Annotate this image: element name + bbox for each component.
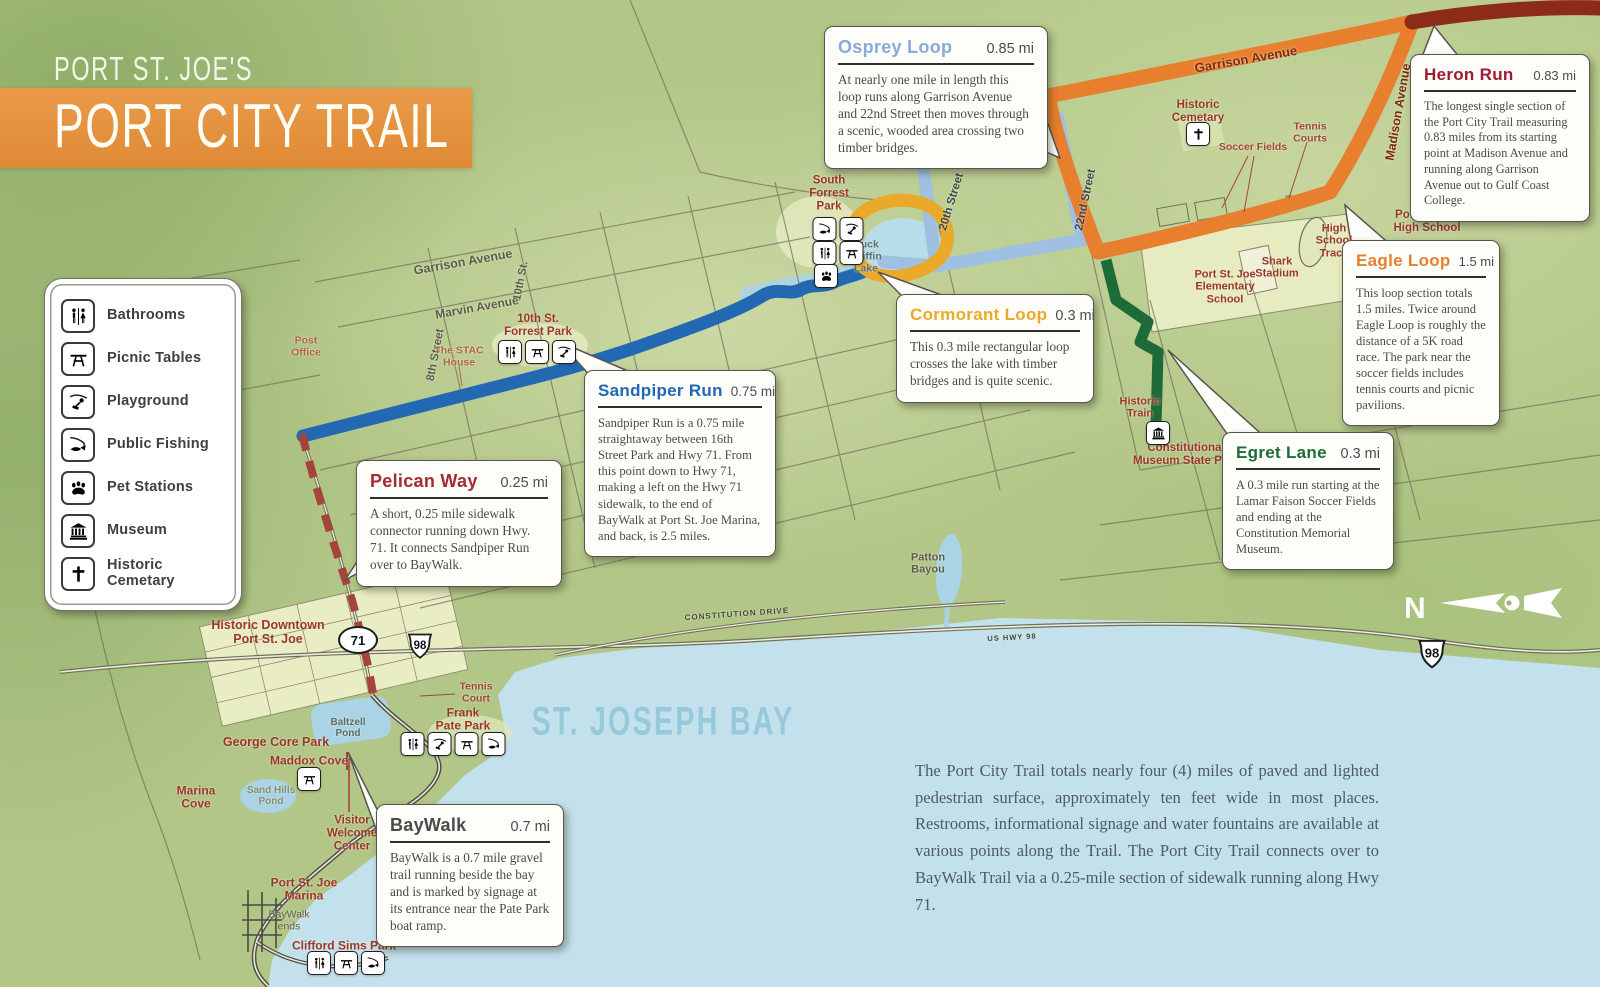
callout-heron-run: Heron Run0.83 mi The longest single sect… — [1410, 54, 1590, 222]
fishing-icon — [482, 732, 506, 756]
callout-sandpiper-run: Sandpiper Run0.75 mi Sandpiper Run is a … — [584, 370, 776, 557]
label-post-office: Post Office — [291, 335, 321, 359]
picnic-table-icon — [525, 340, 549, 364]
label-tennis-courts: Tennis Courts — [1293, 121, 1327, 145]
svg-text:98: 98 — [1425, 645, 1439, 660]
callout-distance: 0.75 mi — [731, 384, 775, 399]
callout-body: A short, 0.25 mile sidewalk connector ru… — [370, 506, 548, 574]
clifford-sims-park-icons — [307, 951, 385, 975]
legend-item-public-fishing: Public Fishing — [61, 428, 231, 462]
label-marina-cove: Marina Cove — [177, 785, 216, 812]
restroom-icon — [813, 241, 837, 265]
callout-title: Osprey Loop — [838, 37, 952, 58]
label-south-forrest-park: South Forrest Park — [809, 175, 849, 214]
fishing-icon — [361, 951, 385, 975]
label-historic-downtown: Historic Downtown Port St. Joe — [211, 618, 324, 646]
trail-summary-paragraph: The Port City Trail totals nearly four (… — [915, 758, 1379, 918]
frank-pate-park-icons — [401, 732, 506, 756]
paw-icon — [61, 471, 95, 505]
legend-item-playground: Playground — [61, 385, 231, 419]
legend-label: Bathrooms — [107, 308, 185, 324]
museum-icon — [61, 514, 95, 548]
label-sand-hills-pond: Sand Hills Pond — [247, 785, 295, 807]
playground-icon — [552, 340, 576, 364]
callout-body: At nearly one mile in length this loop r… — [838, 72, 1034, 156]
paw-icon — [814, 264, 838, 288]
label-elementary-school: Port St. Joe Elementary School — [1194, 269, 1255, 306]
legend-label: Pet Stations — [107, 480, 193, 496]
callout-body: A 0.3 mile run starting at the Lamar Fai… — [1236, 477, 1380, 557]
legend-label: Playground — [107, 394, 189, 410]
callout-cormorant-loop: Cormorant Loop0.3 mi This 0.3 mile recta… — [896, 294, 1094, 403]
label-baltzell-pond: Baltzell Pond — [330, 717, 365, 739]
callout-title: Sandpiper Run — [598, 381, 723, 401]
callout-body: This 0.3 mile rectangular loop crosses t… — [910, 339, 1080, 390]
callout-eagle-loop: Eagle Loop1.5 mi This loop section total… — [1342, 240, 1500, 426]
hwy-98-badge-right: 98 — [1415, 638, 1449, 677]
legend-label: Historic Cemetary — [107, 558, 175, 590]
south-forrest-park-icons-row1 — [813, 217, 864, 241]
legend-label: Museum — [107, 523, 167, 539]
label-baywalk-ends: BayWalk ends — [268, 909, 309, 933]
fishing-icon — [61, 428, 95, 462]
callout-distance: 0.25 mi — [500, 475, 548, 491]
trail-heron-dark — [1412, 8, 1600, 22]
callout-title: Cormorant Loop — [910, 305, 1047, 325]
callout-egret-lane: Egret Lane0.3 mi A 0.3 mile run starting… — [1222, 432, 1394, 570]
svg-text:N: N — [1404, 592, 1426, 625]
cross-icon — [1186, 122, 1210, 146]
callout-distance: 0.83 mi — [1533, 68, 1576, 83]
label-patton-bayou: Patton Bayou — [911, 552, 945, 577]
picnic-table-icon — [840, 241, 864, 265]
map-title: PORT CITY TRAIL — [54, 88, 449, 166]
playground-icon — [840, 217, 864, 241]
maddox-cove-icon — [297, 767, 321, 791]
compass-rose: N — [1404, 588, 1562, 625]
hwy-98-badge-left: 98 — [405, 632, 435, 667]
picnic-table-icon — [334, 951, 358, 975]
legend-label: Public Fishing — [107, 437, 209, 453]
label-historic-train: Historic Train — [1120, 396, 1161, 421]
map-kicker: PORT ST. JOE'S — [54, 50, 253, 89]
callout-distance: 1.5 mi — [1459, 254, 1494, 269]
cross-icon — [61, 557, 95, 591]
svg-text:98: 98 — [414, 640, 427, 652]
legend-label: Picnic Tables — [107, 351, 201, 367]
legend: Bathrooms Picnic Tables Playground Publi… — [44, 278, 242, 611]
tenth-st-park-icons — [498, 340, 576, 364]
label-maddox-cove: Maddox Cove — [270, 754, 348, 767]
legend-item-picnic-tables: Picnic Tables — [61, 342, 231, 376]
callout-distance: 0.3 mi — [1341, 446, 1381, 462]
callout-title: Egret Lane — [1236, 443, 1327, 463]
legend-item-historic-cemetary: Historic Cemetary — [61, 557, 231, 591]
label-visitor-welcome-center: Visitor Welcome Center — [327, 815, 377, 854]
callout-distance: 0.3 mi — [1055, 308, 1095, 324]
picnic-table-icon — [455, 732, 479, 756]
callout-body: Sandpiper Run is a 0.75 mile straightawa… — [598, 415, 762, 544]
callout-title: Pelican Way — [370, 471, 478, 492]
callout-body: The longest single section of the Port C… — [1424, 99, 1576, 209]
label-george-core-park: George Core Park — [223, 735, 329, 749]
callout-title: BayWalk — [390, 815, 466, 836]
historic-cemetary-icon — [1186, 122, 1210, 146]
legend-item-museum: Museum — [61, 514, 231, 548]
label-shark-stadium: Shark Stadium — [1255, 256, 1298, 281]
picnic-table-icon — [297, 767, 321, 791]
south-forrest-park-icons-row3 — [814, 264, 838, 288]
callout-body: This loop section totals 1.5 miles. Twic… — [1356, 285, 1486, 413]
restroom-icon — [401, 732, 425, 756]
port-city-trail-map: N PORT ST. JOE'S PORT CITY TRAIL Bathroo… — [0, 0, 1600, 987]
callout-title: Eagle Loop — [1356, 251, 1451, 271]
label-port-st-joe-marina: Port St. Joe Marina — [271, 877, 338, 904]
callout-baywalk: BayWalk0.7 mi BayWalk is a 0.7 mile grav… — [376, 804, 564, 947]
label-historic-cemetary: Historic Cemetary — [1172, 99, 1224, 125]
museum-map-icon — [1146, 421, 1170, 445]
callout-osprey-loop: Osprey Loop0.85 mi At nearly one mile in… — [824, 26, 1048, 169]
label-frank-pate-park: Frank Pate Park — [436, 707, 491, 734]
restroom-icon — [498, 340, 522, 364]
label-tennis-court: Tennis Court — [459, 681, 492, 705]
fishing-icon — [813, 217, 837, 241]
callout-distance: 0.7 mi — [511, 819, 551, 835]
picnic-table-icon — [61, 342, 95, 376]
label-10th-st-forrest-park: 10th St. Forrest Park — [504, 313, 572, 339]
callout-body: BayWalk is a 0.7 mile gravel trail runni… — [390, 850, 550, 934]
label-soccer-fields: Soccer Fields — [1219, 142, 1287, 154]
label-st-joseph-bay: ST. JOSEPH BAY — [532, 700, 795, 745]
label-stac-house: The STAC House — [434, 345, 483, 369]
callout-title: Heron Run — [1424, 65, 1514, 85]
callout-pelican-way: Pelican Way0.25 mi A short, 0.25 mile si… — [356, 460, 562, 587]
restroom-icon — [307, 951, 331, 975]
playground-icon — [61, 385, 95, 419]
callout-distance: 0.85 mi — [986, 41, 1034, 57]
hwy-71-badge: 71 — [338, 626, 378, 654]
legend-item-bathrooms: Bathrooms — [61, 299, 231, 333]
museum-icon — [1146, 421, 1170, 445]
title-banner: PORT CITY TRAIL — [0, 88, 472, 168]
playground-icon — [428, 732, 452, 756]
legend-item-pet-stations: Pet Stations — [61, 471, 231, 505]
restroom-icon — [61, 299, 95, 333]
south-forrest-park-icons-row2 — [813, 241, 864, 265]
